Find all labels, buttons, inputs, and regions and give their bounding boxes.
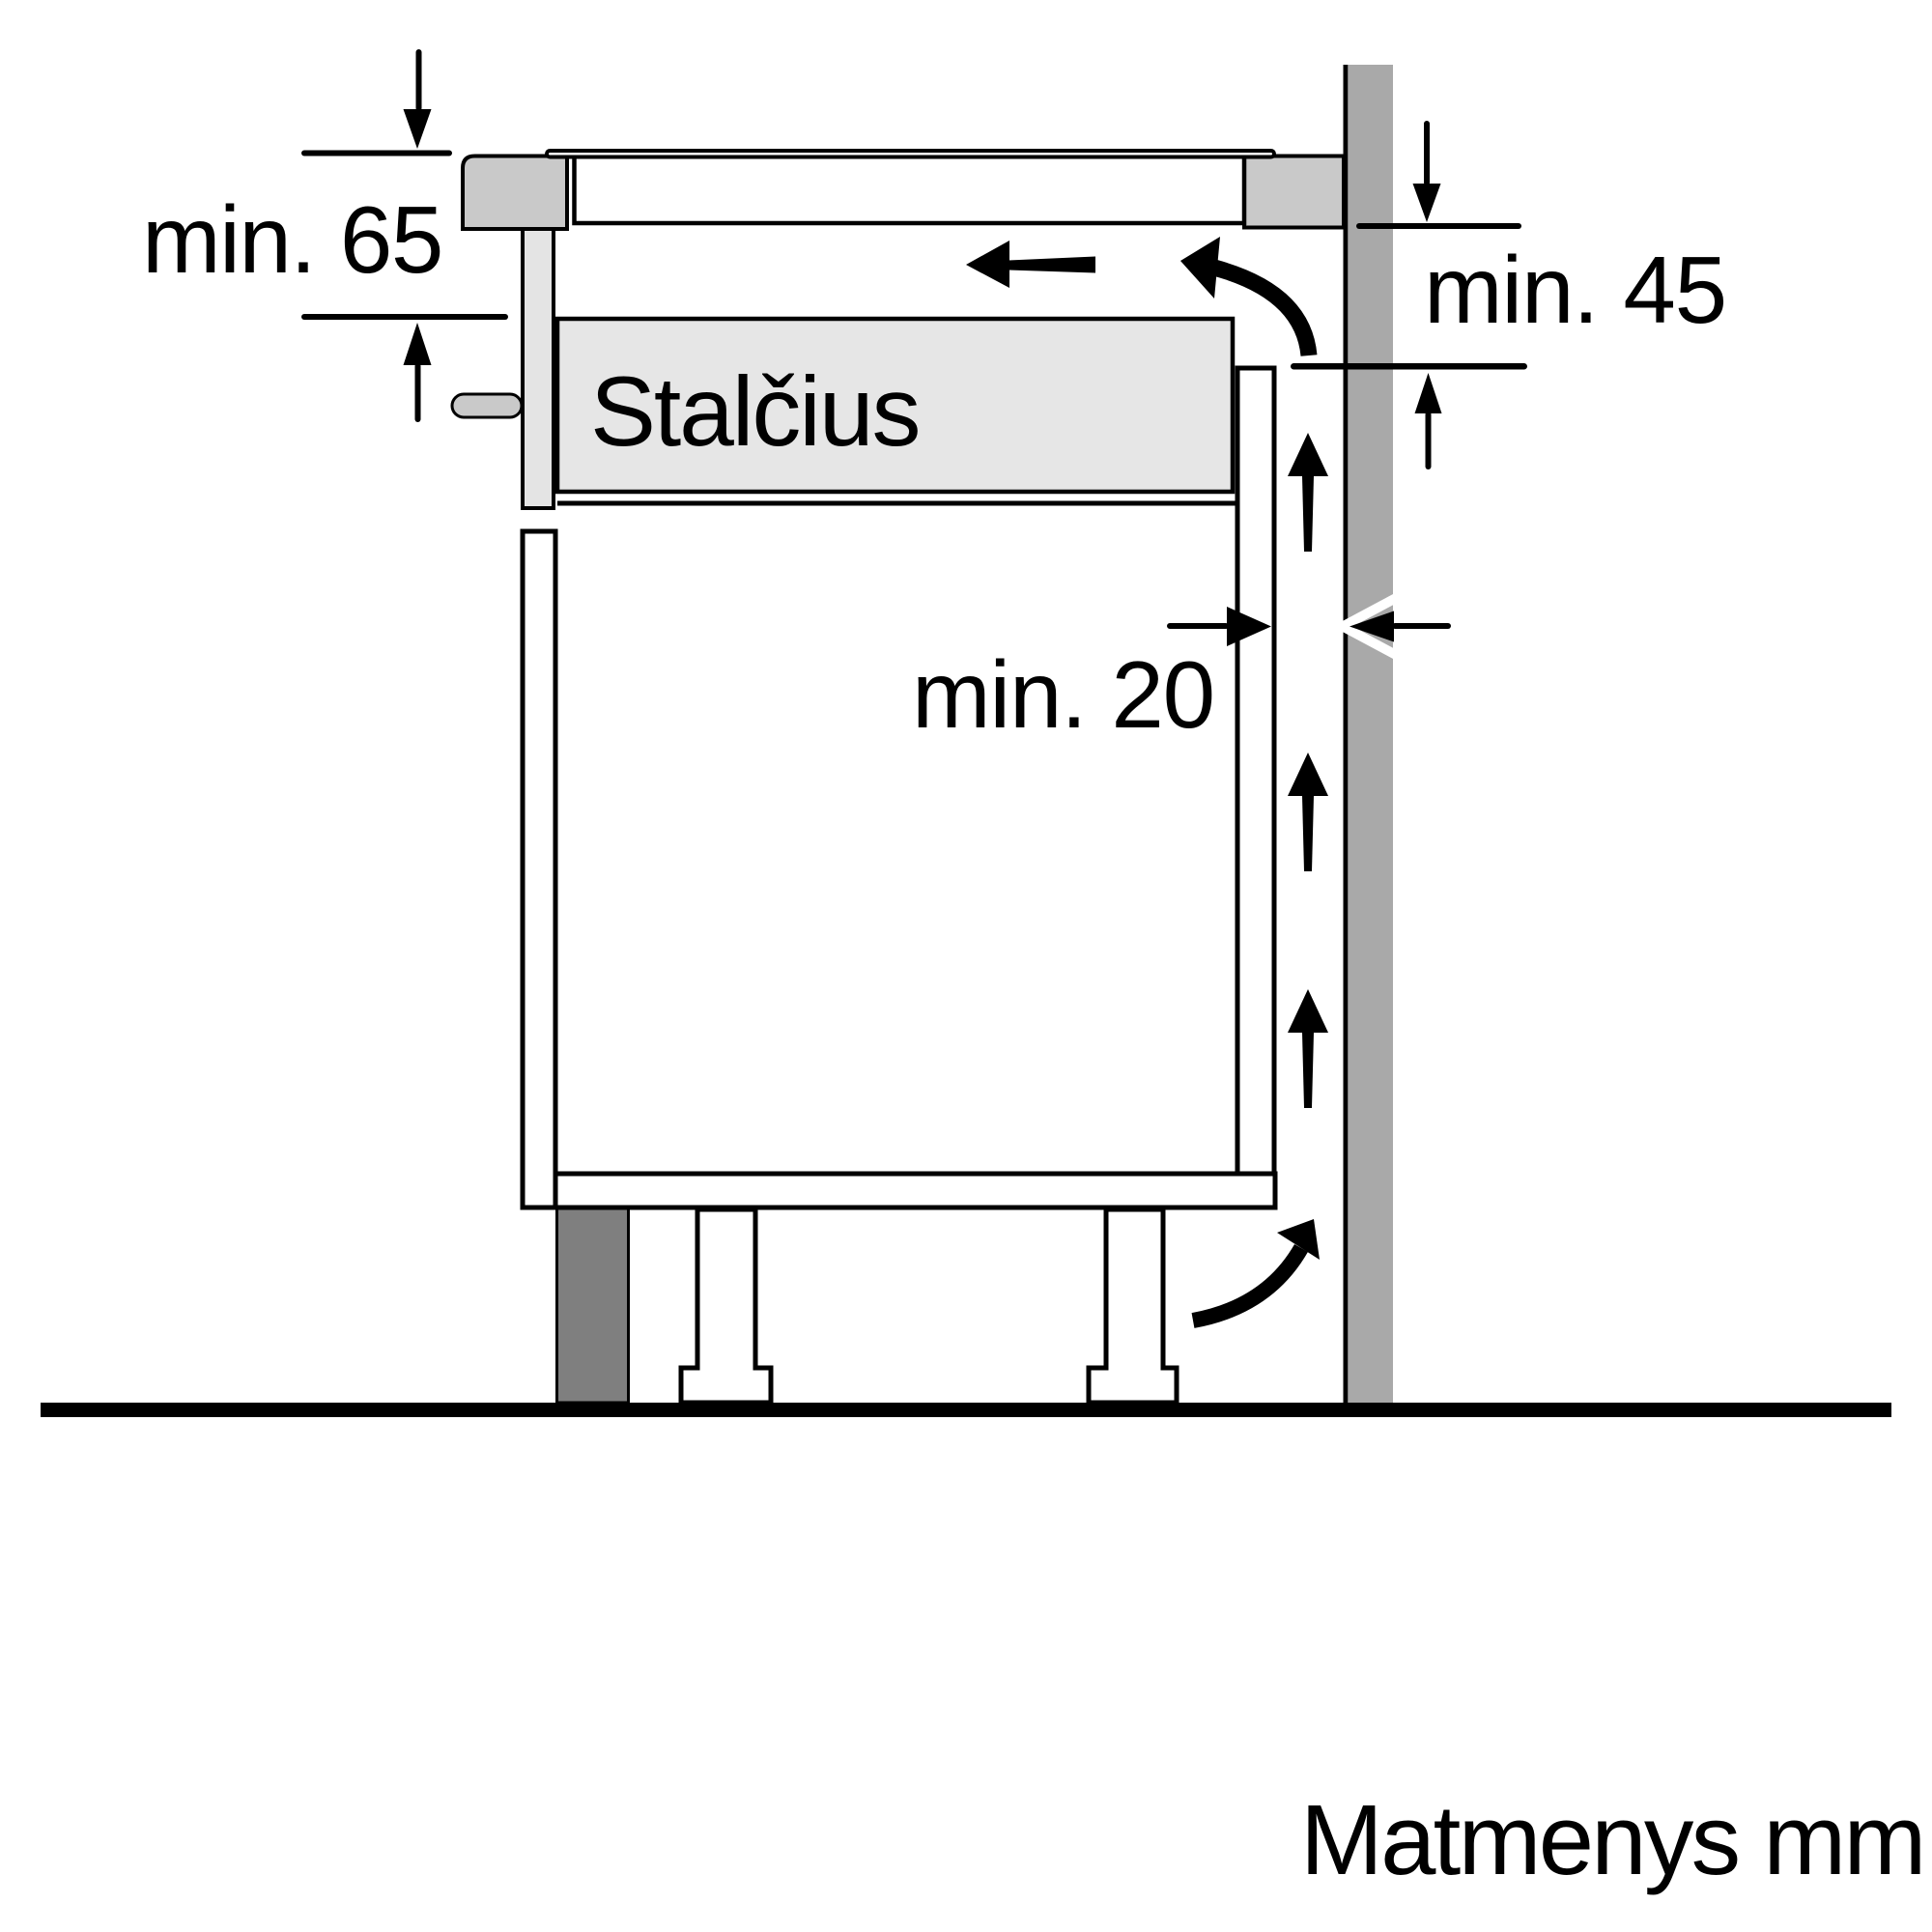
svg-text:min. 45: min. 45	[1424, 237, 1726, 343]
svg-text:Stalčius: Stalčius	[590, 356, 919, 467]
svg-text:min. 65: min. 65	[142, 186, 442, 293]
svg-text:Matmenys mm: Matmenys mm	[1300, 1784, 1924, 1895]
svg-text:min. 20: min. 20	[912, 641, 1214, 748]
